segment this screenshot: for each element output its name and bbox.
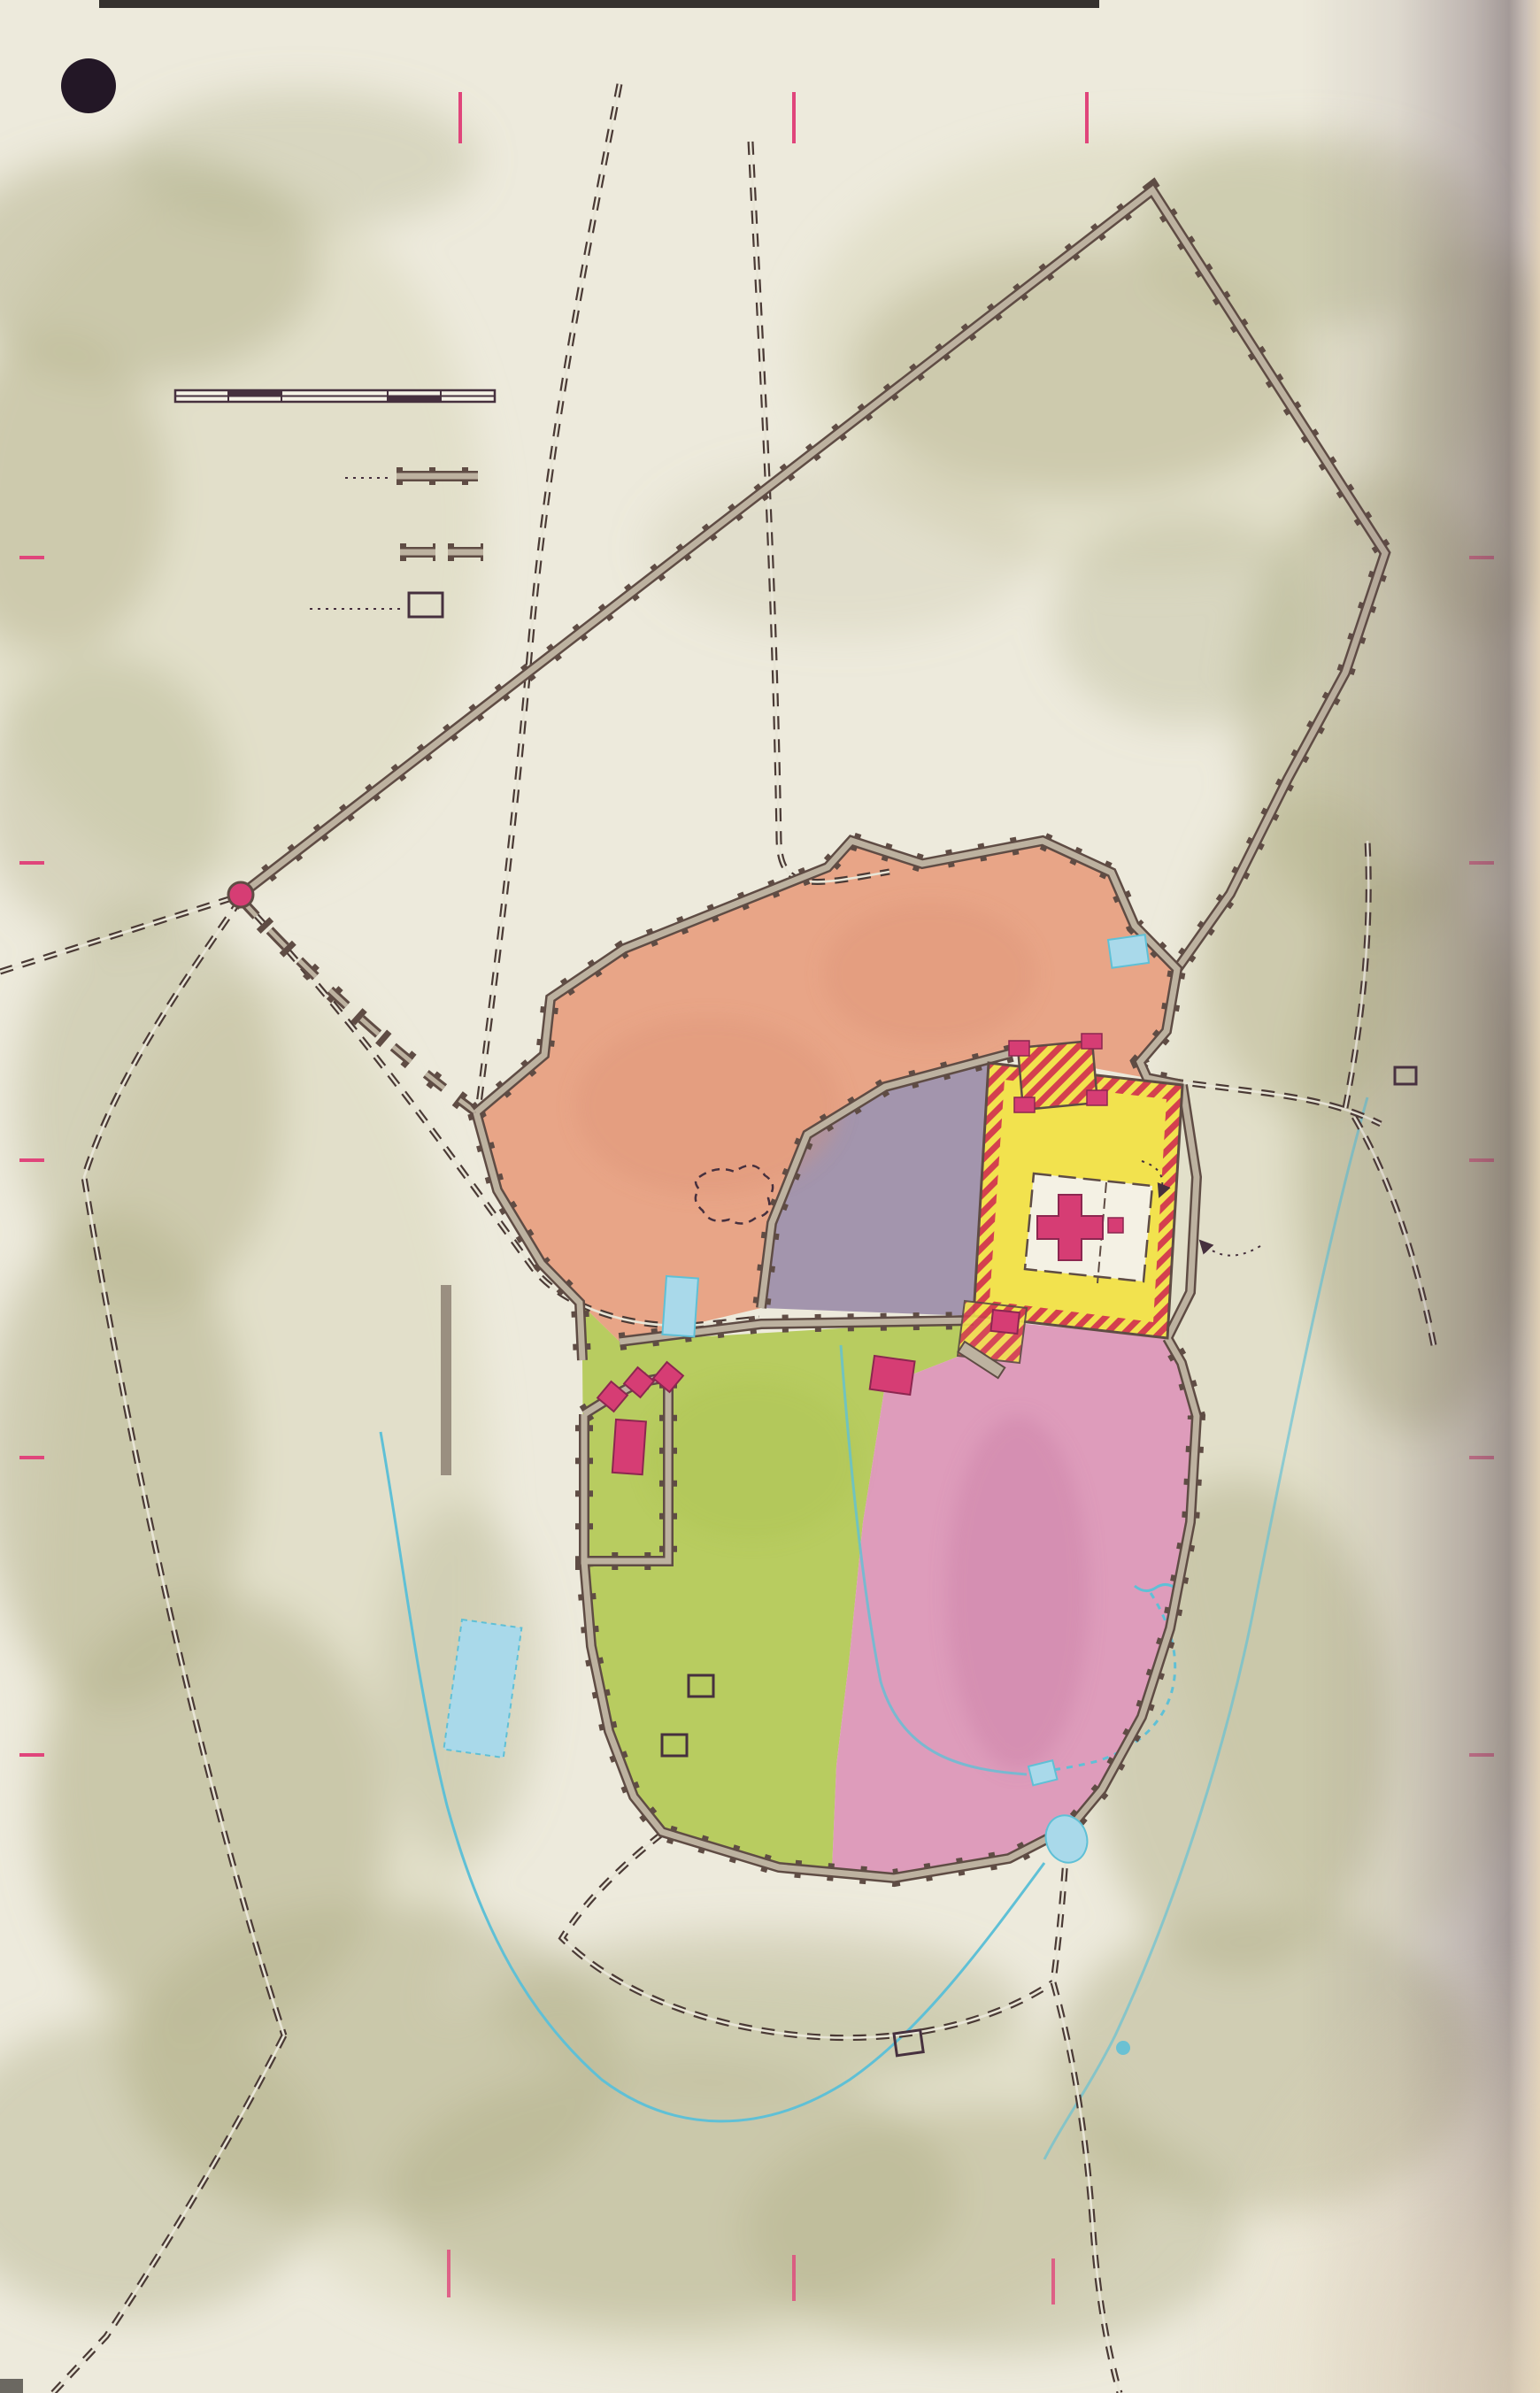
jerusalem-map xyxy=(0,0,1540,2393)
map-page xyxy=(0,0,1540,2393)
fortress-antonia-icon xyxy=(1009,1034,1107,1112)
pool-bethesda-icon xyxy=(1108,935,1149,968)
en-rogel-spring-icon xyxy=(1116,2041,1130,2055)
grid-letters-top xyxy=(460,92,1087,143)
xystus-building xyxy=(990,1310,1019,1334)
page-number-badge xyxy=(61,58,116,113)
altar-icon xyxy=(1108,1218,1123,1233)
road-sychem xyxy=(478,84,620,1111)
psephinus-tower-icon xyxy=(228,882,253,907)
hasmonaean-building xyxy=(870,1356,915,1395)
herod-note xyxy=(441,1285,451,1475)
pool-amygdalon-icon xyxy=(662,1276,698,1336)
scale-bar xyxy=(175,390,495,402)
palace-herod-building xyxy=(612,1420,646,1474)
